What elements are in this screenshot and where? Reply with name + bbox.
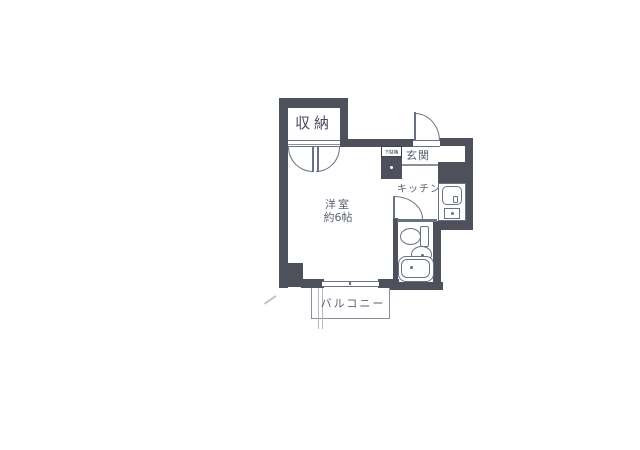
- wall-genkan-block: [438, 162, 466, 184]
- kitchen-sink-symbol: [442, 186, 462, 205]
- wall-top: [279, 98, 348, 108]
- window-center-tick: [349, 282, 351, 285]
- stove-burner-symbol: [444, 208, 460, 219]
- scan-artifact-mark: [264, 295, 276, 304]
- stove-burner-dot: [451, 212, 454, 215]
- wall-bath-right: [433, 221, 441, 290]
- wall-left: [279, 98, 288, 288]
- balcony-drain-line-1: [318, 288, 319, 329]
- toilet-bowl-symbol: [400, 228, 421, 245]
- kitchen-label: キッチン: [396, 184, 442, 195]
- shoe-cabinet-knob: [390, 166, 393, 169]
- entrance-step-line: [400, 164, 438, 166]
- room-size-text: 約6帖: [324, 212, 353, 225]
- entrance-threshold: [413, 140, 440, 147]
- bathtub-symbol: [398, 256, 434, 282]
- wall-bottom-left: [301, 279, 324, 288]
- shoe-cabinet-body: [381, 157, 402, 179]
- closet-left-door-swing-arc: [288, 147, 313, 172]
- room-label: 洋室 約6帖: [314, 198, 362, 226]
- closet-threshold: [288, 140, 340, 147]
- balcony-window: [322, 281, 379, 287]
- entrance-door-swing-arc: [415, 113, 440, 141]
- entrance-label: 玄関: [403, 150, 433, 163]
- kitchen-counter: [438, 183, 466, 221]
- closet-right-door-swing-arc: [316, 147, 340, 172]
- bathtub-drain-dot: [410, 266, 413, 269]
- floor-plan-canvas: 収納 玄関 下駄箱 キッチン 洋室 約6帖: [0, 0, 640, 450]
- shoe-cabinet-label-box: 下駄箱: [381, 146, 402, 157]
- toilet-tank-symbol: [420, 226, 429, 247]
- wall-hall-top: [340, 139, 414, 147]
- shoe-cabinet-label: 下駄箱: [385, 148, 399, 155]
- wall-closet-right: [340, 104, 348, 142]
- wall-bath-top-line: [397, 219, 437, 222]
- bathtub-inner-rim: [401, 259, 430, 278]
- bathroom-door-swing-arc: [394, 196, 423, 219]
- balcony-label: バルコニー: [322, 297, 384, 311]
- wall-right-upper: [465, 138, 473, 224]
- wall-step-horizontal: [437, 221, 473, 230]
- kitchen-faucet-symbol: [453, 196, 458, 203]
- closet-track-line: [288, 144, 340, 145]
- storage-room-label: 収納: [288, 108, 340, 140]
